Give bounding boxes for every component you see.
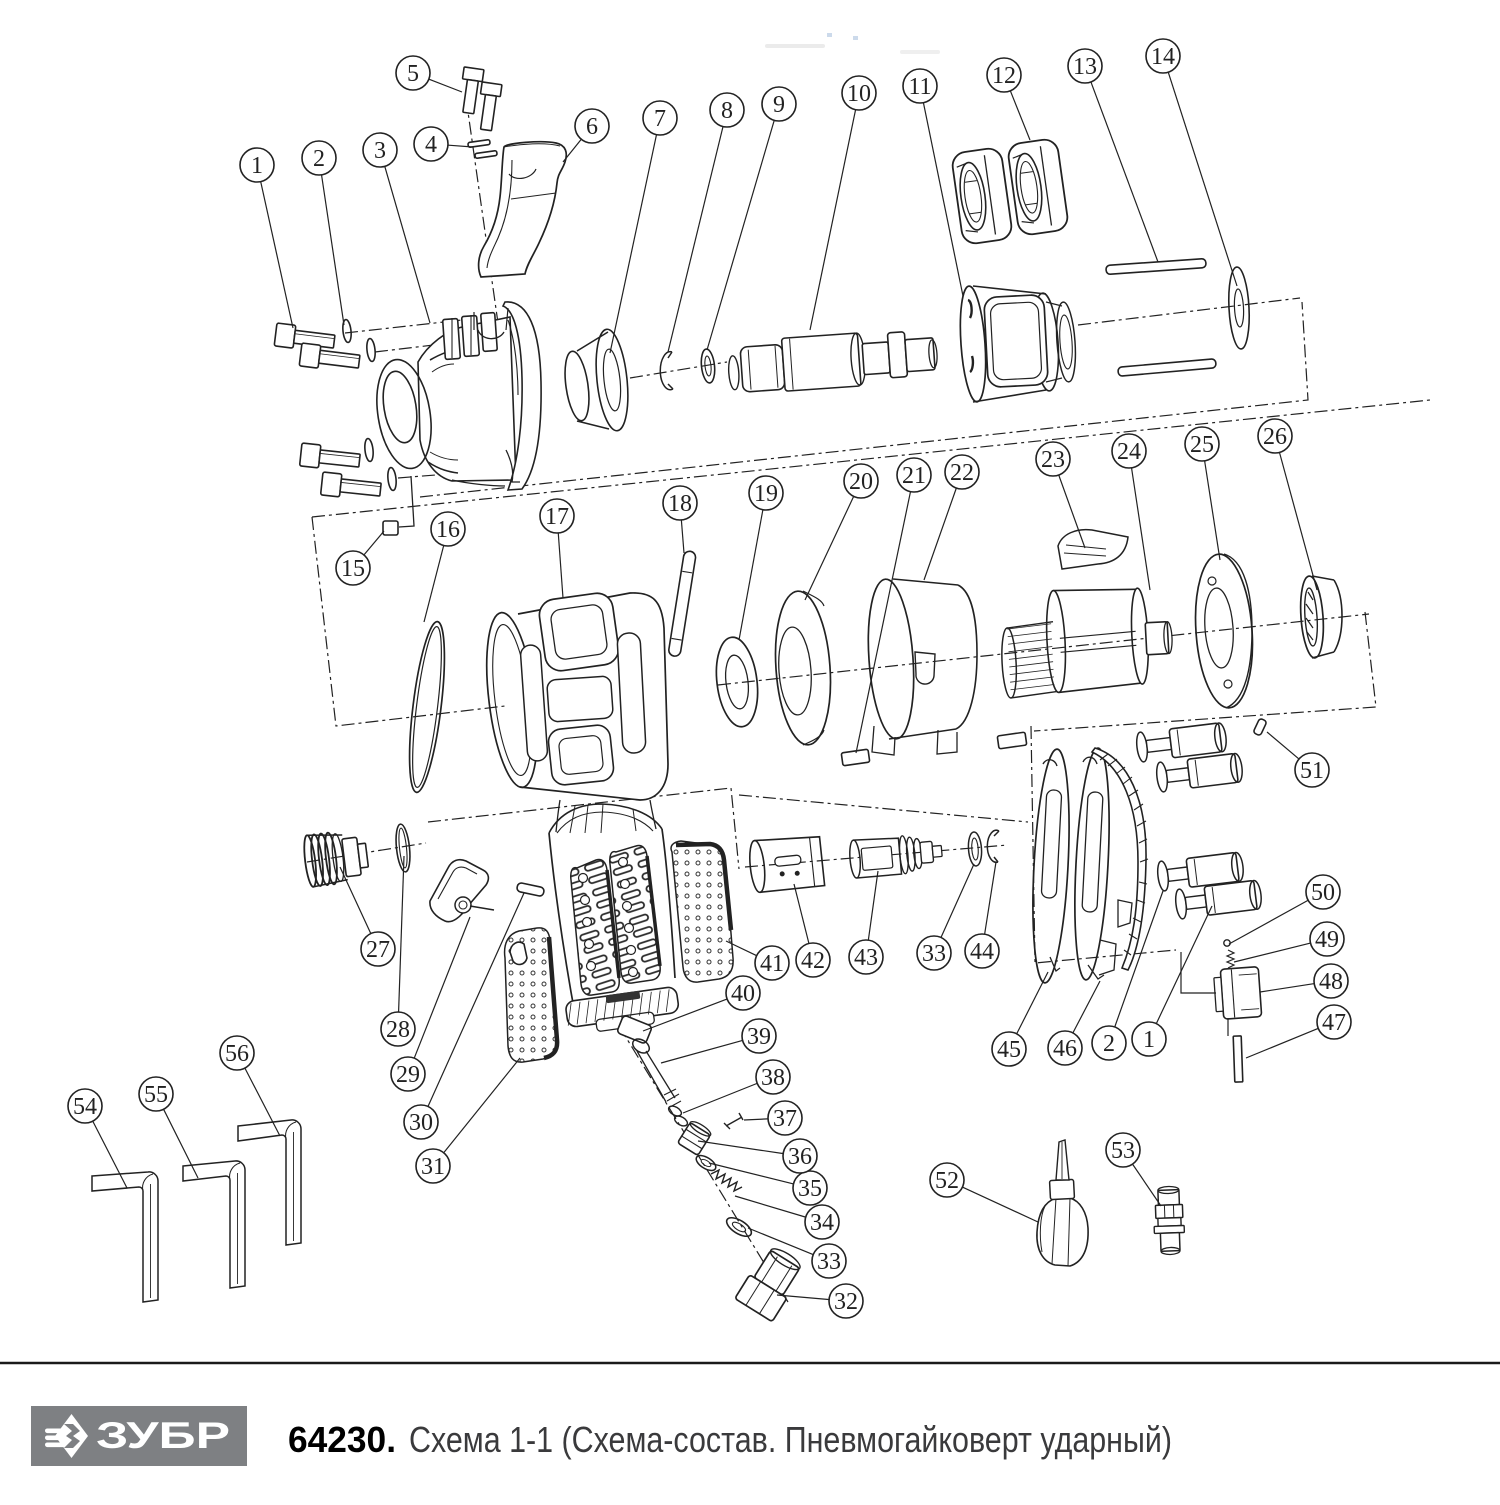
svg-text:20: 20 <box>849 469 873 495</box>
svg-text:4: 4 <box>425 132 437 158</box>
svg-text:19: 19 <box>754 481 778 507</box>
svg-text:52: 52 <box>935 1168 959 1194</box>
svg-text:29: 29 <box>396 1062 420 1088</box>
svg-text:30: 30 <box>409 1110 433 1136</box>
svg-text:41: 41 <box>760 951 784 977</box>
svg-text:36: 36 <box>788 1144 812 1170</box>
svg-text:26: 26 <box>1263 424 1287 450</box>
svg-text:24: 24 <box>1117 439 1141 465</box>
svg-text:15: 15 <box>341 556 365 582</box>
svg-text:25: 25 <box>1190 432 1214 458</box>
svg-text:13: 13 <box>1073 54 1097 80</box>
svg-text:10: 10 <box>847 81 871 107</box>
svg-text:1: 1 <box>1143 1027 1155 1053</box>
svg-text:35: 35 <box>798 1176 822 1202</box>
svg-text:53: 53 <box>1111 1138 1135 1164</box>
svg-text:6: 6 <box>586 114 598 140</box>
svg-text:47: 47 <box>1322 1010 1346 1036</box>
svg-text:12: 12 <box>992 63 1016 89</box>
svg-text:54: 54 <box>73 1094 97 1120</box>
svg-text:17: 17 <box>545 504 569 530</box>
svg-text:48: 48 <box>1319 969 1343 995</box>
svg-text:27: 27 <box>366 937 390 963</box>
svg-text:55: 55 <box>144 1082 168 1108</box>
svg-text:42: 42 <box>801 948 825 974</box>
svg-text:7: 7 <box>654 106 666 132</box>
svg-text:43: 43 <box>854 945 878 971</box>
svg-text:46: 46 <box>1053 1036 1077 1062</box>
svg-text:16: 16 <box>436 517 460 543</box>
svg-text:40: 40 <box>731 981 755 1007</box>
svg-text:44: 44 <box>970 939 994 965</box>
svg-text:2: 2 <box>313 146 325 172</box>
svg-text:64230.: 64230. <box>288 1419 396 1460</box>
svg-text:34: 34 <box>810 1210 834 1236</box>
svg-text:22: 22 <box>950 460 974 486</box>
svg-text:32: 32 <box>834 1289 858 1315</box>
svg-text:33: 33 <box>922 941 946 967</box>
svg-text:56: 56 <box>225 1041 249 1067</box>
svg-text:8: 8 <box>721 98 733 124</box>
svg-text:5: 5 <box>407 61 419 87</box>
svg-text:49: 49 <box>1315 927 1339 953</box>
svg-text:38: 38 <box>761 1065 785 1091</box>
svg-text:31: 31 <box>421 1154 445 1180</box>
svg-text:3: 3 <box>374 138 386 164</box>
svg-text:23: 23 <box>1041 447 1065 473</box>
svg-text:45: 45 <box>997 1037 1021 1063</box>
svg-text:28: 28 <box>386 1017 410 1043</box>
svg-text:1: 1 <box>251 153 263 179</box>
svg-text:21: 21 <box>902 463 926 489</box>
svg-text:51: 51 <box>1300 758 1324 784</box>
svg-text:2: 2 <box>1103 1031 1115 1057</box>
svg-text:37: 37 <box>773 1106 797 1132</box>
svg-text:50: 50 <box>1311 880 1335 906</box>
svg-text:33: 33 <box>817 1249 841 1275</box>
svg-text:39: 39 <box>747 1024 771 1050</box>
svg-text:11: 11 <box>908 74 931 100</box>
svg-text:Схема 1-1 (Схема-состав. Пневм: Схема 1-1 (Схема-состав. Пневмогайковерт… <box>409 1419 1172 1460</box>
svg-text:9: 9 <box>773 92 785 118</box>
svg-text:14: 14 <box>1151 44 1175 70</box>
svg-text:18: 18 <box>668 491 692 517</box>
svg-text:ЗУБР: ЗУБР <box>96 1415 230 1456</box>
